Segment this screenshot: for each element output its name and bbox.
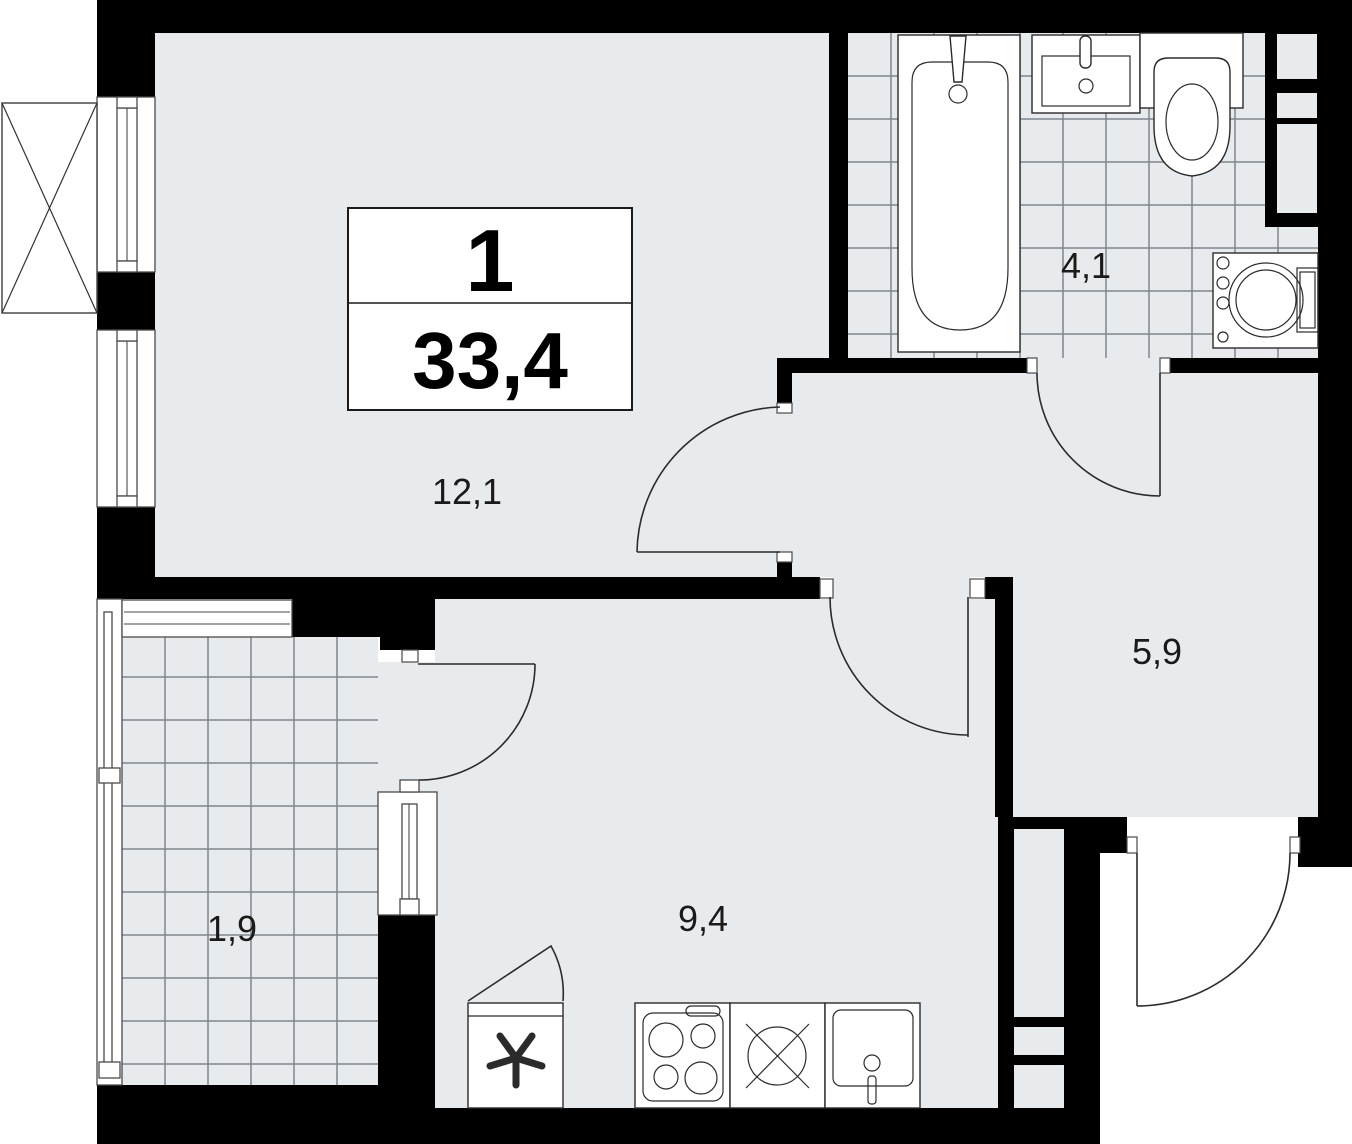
exterior-unit-icon <box>2 103 97 313</box>
floor-plan: 1 33,4 12,1 4,1 5,9 9,4 1,9 <box>0 0 1352 1144</box>
wall-top <box>97 0 1320 33</box>
window-living-2-icon <box>97 330 155 507</box>
wall-left-1 <box>97 0 155 100</box>
wall-left-2 <box>97 270 155 330</box>
stove-icon <box>635 1003 730 1108</box>
wall-right <box>1318 0 1352 867</box>
living-room-area-label: 12,1 <box>432 471 502 512</box>
dishwasher-icon <box>825 1003 920 1108</box>
vent-shaft-icon <box>1277 93 1317 118</box>
vent-shaft-icon <box>1277 124 1317 213</box>
kitchen-area-label: 9,4 <box>678 898 728 939</box>
bathtub-icon <box>898 35 1020 352</box>
bathroom-area-label: 4,1 <box>1061 245 1111 286</box>
vent-shaft-icon <box>1014 829 1064 1017</box>
wall-living-kitchen <box>97 577 820 599</box>
title-block: 1 33,4 <box>348 208 632 410</box>
wall-kitchen-hallway <box>995 597 1013 817</box>
vent-shaft-icon <box>1277 34 1317 79</box>
hallway-floor-lower <box>1013 577 1318 817</box>
balcony-area-label: 1,9 <box>207 908 257 949</box>
bathroom-sink-icon <box>1032 35 1140 113</box>
kitchen-sink-icon <box>730 1003 825 1108</box>
washing-machine-icon <box>1213 253 1318 348</box>
window-living-1-icon <box>97 97 155 272</box>
wall-bottom-kitchen <box>435 1108 1013 1144</box>
vent-shaft-icon <box>1014 1065 1064 1108</box>
door-entrance <box>1137 853 1290 1006</box>
hallway-area-label: 5,9 <box>1132 631 1182 672</box>
total-area: 33,4 <box>412 316 568 405</box>
room-floors <box>97 33 1318 1108</box>
balcony-floor <box>97 599 378 1085</box>
wall-bottom-balcony <box>97 1085 378 1144</box>
window-kitchen-balcony-icon <box>378 780 437 915</box>
hallway-floor <box>792 373 1318 577</box>
rooms-count: 1 <box>466 211 515 310</box>
vent-shaft-icon <box>1014 1027 1064 1055</box>
wall-living-bathroom <box>829 33 848 373</box>
